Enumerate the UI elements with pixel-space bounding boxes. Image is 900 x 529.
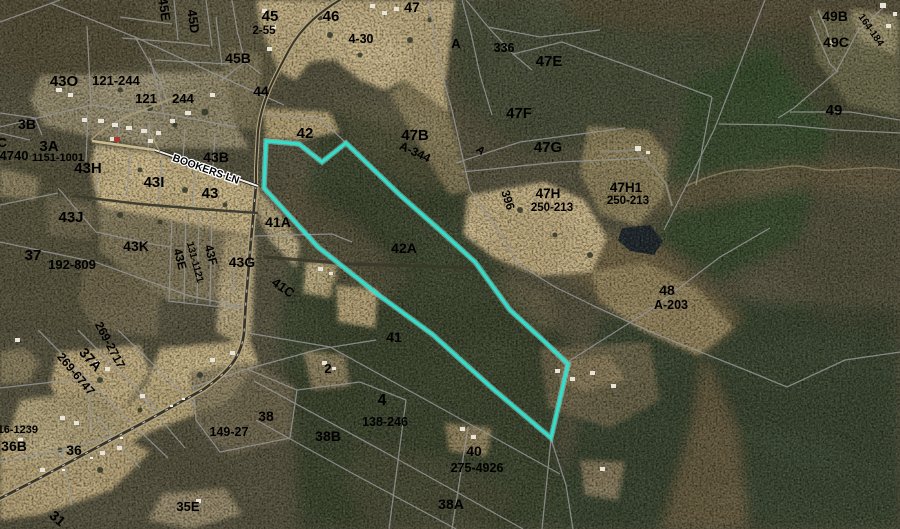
svg-text:49B: 49B [822,8,848,24]
svg-text:138-246: 138-246 [362,415,408,429]
svg-text:36: 36 [66,442,82,458]
svg-text:2-55: 2-55 [252,25,276,37]
svg-text:42: 42 [297,125,314,142]
svg-text:47G: 47G [534,139,562,156]
svg-text:43O: 43O [50,73,79,90]
svg-text:4740: 4740 [0,148,28,163]
svg-text:43K: 43K [123,238,149,254]
svg-text:42A: 42A [391,240,417,256]
svg-text:43J: 43J [58,209,83,226]
svg-text:38: 38 [258,408,274,424]
svg-text:4-30: 4-30 [348,32,373,46]
svg-text:41: 41 [386,329,402,345]
svg-text:250-213: 250-213 [607,195,649,207]
svg-text:35E: 35E [176,499,199,514]
svg-text:47F: 47F [506,105,532,122]
svg-text:47H1: 47H1 [610,180,643,195]
svg-text:A-203: A-203 [654,298,688,312]
svg-text:41A: 41A [265,214,291,230]
svg-text:48: 48 [659,282,675,298]
svg-text:49C: 49C [823,34,849,50]
svg-text:116-1239: 116-1239 [0,424,38,436]
svg-text:46: 46 [323,8,340,25]
svg-text:121-244: 121-244 [92,73,140,88]
svg-text:336: 336 [494,41,515,55]
svg-text:36B: 36B [1,438,27,454]
svg-text:A: A [451,36,461,51]
svg-text:47E: 47E [536,53,563,70]
svg-text:149-27: 149-27 [210,425,249,439]
svg-text:43I: 43I [144,174,165,191]
svg-text:250-213: 250-213 [531,202,573,214]
svg-text:47: 47 [404,0,420,15]
svg-text:192-809: 192-809 [48,257,96,272]
svg-text:49: 49 [826,102,843,119]
svg-text:121: 121 [135,91,157,106]
svg-text:244: 244 [172,91,194,106]
svg-text:45B: 45B [225,50,251,66]
svg-text:4: 4 [378,392,387,409]
svg-text:38B: 38B [315,428,341,444]
svg-text:44: 44 [253,83,269,99]
svg-text:43G: 43G [229,254,256,270]
svg-text:3B: 3B [18,116,36,132]
svg-text:45: 45 [262,8,279,25]
svg-text:2: 2 [324,361,331,376]
svg-text:43H: 43H [74,160,102,177]
svg-text:275-4926: 275-4926 [451,461,504,475]
svg-text:47H: 47H [536,186,561,201]
svg-text:37: 37 [25,247,42,264]
svg-text:40: 40 [466,443,482,459]
svg-text:43: 43 [202,185,219,202]
svg-text:38A: 38A [438,496,464,512]
